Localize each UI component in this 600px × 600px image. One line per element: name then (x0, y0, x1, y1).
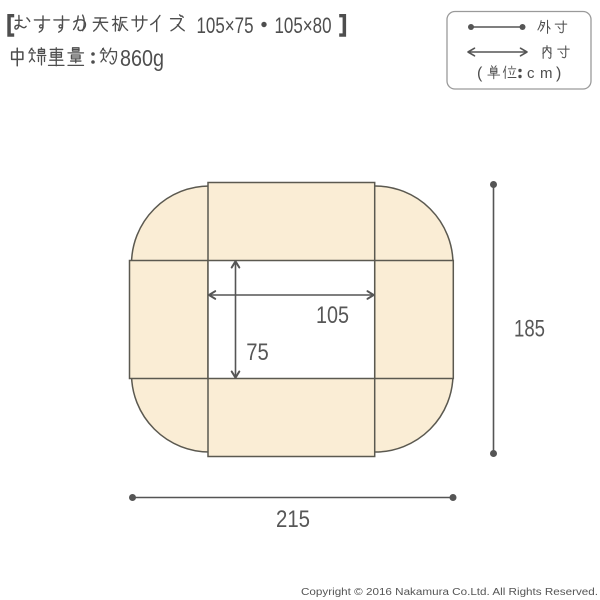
svg-text:(: ( (477, 65, 483, 82)
svg-text:): ) (556, 65, 561, 82)
svg-text:185: 185 (514, 316, 545, 343)
svg-text:m: m (540, 65, 553, 82)
svg-text:75: 75 (246, 339, 269, 366)
svg-text:Copyright © 2016 Nakamura Co.L: Copyright © 2016 Nakamura Co.Ltd. All Ri… (301, 587, 598, 598)
svg-text:105: 105 (316, 302, 349, 329)
svg-text:105×80: 105×80 (275, 13, 332, 38)
svg-text:215: 215 (276, 506, 310, 533)
svg-text:105×75: 105×75 (197, 13, 254, 38)
svg-text:c: c (527, 65, 535, 82)
svg-text:860g: 860g (120, 45, 164, 71)
